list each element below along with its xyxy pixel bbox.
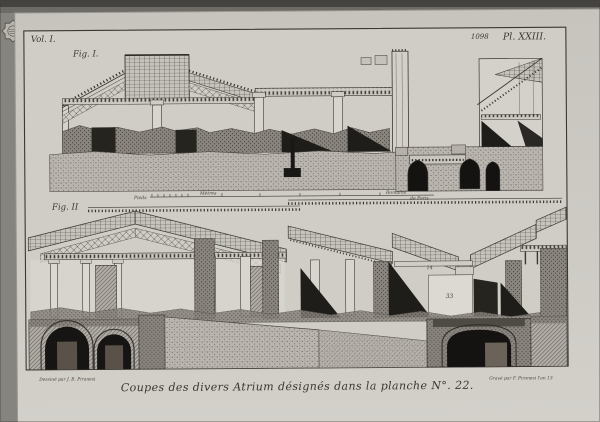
fig1-roof-tower — [125, 55, 189, 103]
scale-left-label: Pieds — [133, 195, 147, 201]
paper-sheet: Vol. I. 1098 Pl. XXIII. Fig. I. — [15, 9, 600, 422]
fig1-arch-niche-left — [408, 160, 428, 191]
fig2-label: Fig. II — [51, 203, 79, 213]
scale-right-label: Romains — [385, 190, 407, 196]
fig2-dark-doorway — [474, 279, 498, 317]
volume-label: Vol. I. — [31, 35, 56, 45]
fig1-label: Fig. I. — [72, 49, 99, 59]
page-number: 1098 — [471, 33, 489, 41]
room-number-label: 33 — [446, 293, 454, 300]
fig1-foundation — [50, 149, 410, 192]
plate-number-label: Pl. XXIII. — [502, 31, 546, 42]
signature-right: Gravé par F. Piranesi l'an 13 — [489, 376, 553, 381]
etching-photo: Vol. I. 1098 Pl. XXIII. Fig. I. — [0, 0, 600, 422]
beam-number-label: 14 — [426, 265, 432, 271]
fig1-arch-niche-right — [460, 159, 480, 189]
scale-far-right-label: de Paris — [410, 196, 429, 202]
fig1-entablature — [255, 87, 406, 96]
fig1-right-wall — [392, 51, 409, 159]
plate-canvas: Vol. I. 1098 Pl. XXIII. Fig. I. — [0, 0, 600, 422]
signature-left: Dessiné par J. B. Piranesi — [38, 377, 96, 382]
photo-top-edge — [0, 0, 600, 7]
plate-caption: Coupes des divers Atrium désignés dans l… — [121, 379, 474, 394]
